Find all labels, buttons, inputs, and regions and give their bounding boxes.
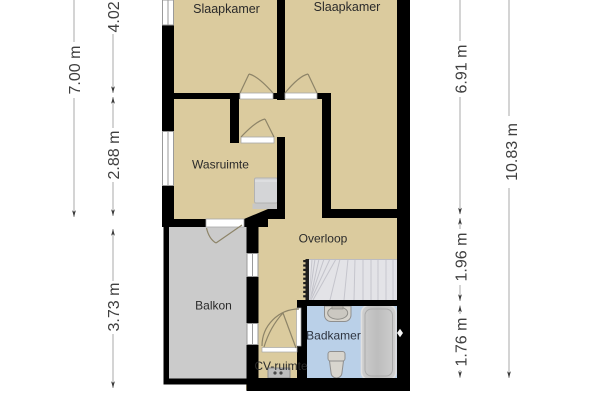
svg-text:1.76 m: 1.76 m [454,318,471,367]
svg-text:Balkon: Balkon [195,299,232,313]
svg-text:Slaapkamer: Slaapkamer [193,2,260,16]
svg-text:CV-ruimte: CV-ruimte [254,359,308,373]
svg-text:1.96 m: 1.96 m [454,233,471,282]
svg-text:Wasruimte: Wasruimte [192,158,249,172]
svg-text:4.02 m: 4.02 m [106,0,123,32]
svg-text:Slaapkamer: Slaapkamer [314,0,381,14]
svg-text:7.00 m: 7.00 m [67,46,84,95]
svg-text:3.73 m: 3.73 m [106,283,123,332]
svg-text:Badkamer: Badkamer [306,329,361,343]
svg-text:6.91 m: 6.91 m [454,45,471,94]
svg-text:10.83 m: 10.83 m [504,123,521,181]
svg-text:Overloop: Overloop [299,232,348,246]
svg-text:2.88 m: 2.88 m [106,131,123,180]
